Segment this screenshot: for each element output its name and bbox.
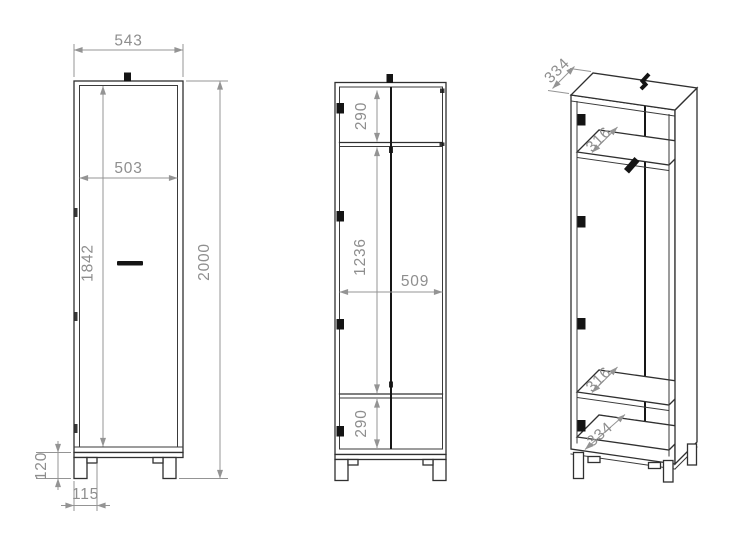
dim-label: 503 xyxy=(114,160,142,177)
wall-bracket-icon xyxy=(387,74,394,83)
leg xyxy=(433,460,446,481)
dim-label: 1842 xyxy=(80,244,97,282)
hinge-icon xyxy=(337,211,345,222)
leg xyxy=(574,453,584,479)
wardrobe-drawing: 543 503 1842 2000 120 xyxy=(0,0,741,555)
shelf-pin-icon xyxy=(389,147,393,153)
dim-overall-width: 543 xyxy=(74,33,183,78)
dim-label: 334 xyxy=(541,55,573,87)
door-handle xyxy=(117,261,143,266)
hinge-icon xyxy=(337,103,345,114)
front-view-closed: 543 503 1842 2000 120 xyxy=(33,33,228,512)
isometric-view: 334 316 316 334 xyxy=(541,55,697,482)
leg xyxy=(163,458,176,479)
dim-label: 509 xyxy=(401,273,429,290)
dim-overall-height: 2000 xyxy=(179,81,228,479)
dim-label: 290 xyxy=(353,409,370,437)
dim-label: 2000 xyxy=(196,243,213,281)
hinge-icon xyxy=(578,216,586,228)
shelf-pin-icon xyxy=(389,382,393,388)
hinge-icon xyxy=(578,114,586,126)
dim-leg-height: 120 xyxy=(33,441,71,490)
hinge-icon xyxy=(337,319,345,330)
metal-base xyxy=(74,453,183,479)
dim-label: 115 xyxy=(72,486,99,503)
right-side-panel xyxy=(675,88,697,464)
dim-label: 1236 xyxy=(352,238,369,276)
hinge-icon xyxy=(578,420,586,432)
leg xyxy=(688,444,697,465)
leg xyxy=(335,460,348,481)
dim-label: 543 xyxy=(114,33,142,50)
hinge-icon xyxy=(75,424,78,433)
hinge-icon xyxy=(75,208,78,217)
dim-label: 290 xyxy=(353,102,370,130)
hinge-icon xyxy=(75,312,78,321)
dim-label: 120 xyxy=(33,452,50,480)
leg xyxy=(74,458,87,479)
shelf-pin-icon xyxy=(440,143,445,147)
technical-drawing-page: 543 503 1842 2000 120 xyxy=(0,0,741,555)
wall-bracket-icon xyxy=(124,73,131,82)
cabinet-body xyxy=(571,73,697,464)
front-view-open: 290 1236 509 290 xyxy=(335,74,446,481)
hinge-icon xyxy=(578,318,586,330)
shelf-pin-icon xyxy=(440,89,445,94)
metal-base xyxy=(335,455,446,481)
hinge-icon xyxy=(337,426,345,437)
leg xyxy=(664,461,674,483)
